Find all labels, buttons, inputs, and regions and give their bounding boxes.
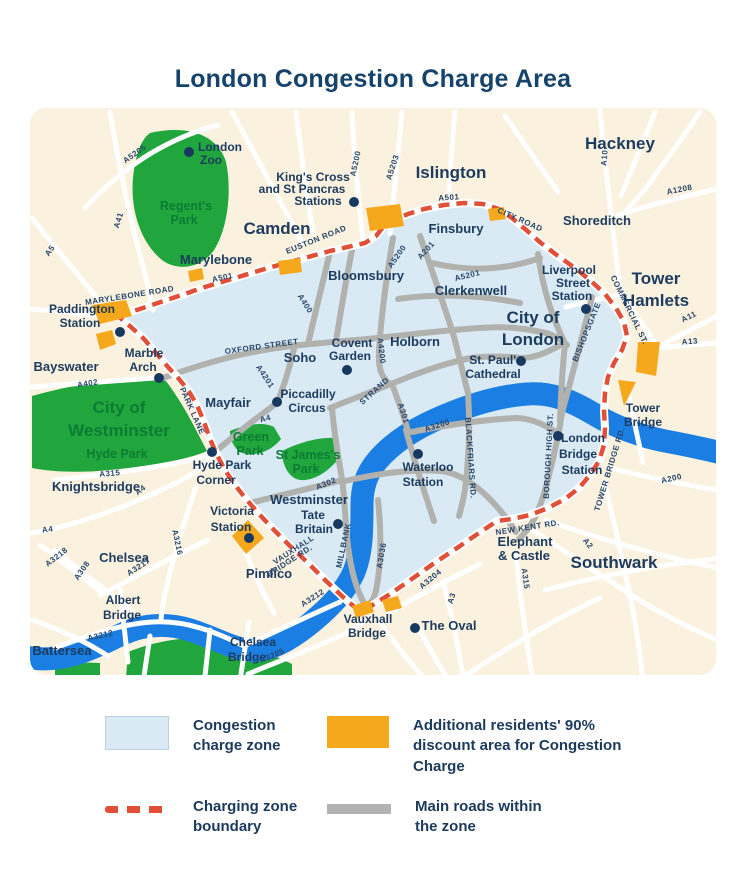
map-label-hyde-park: Hyde Park: [193, 458, 252, 472]
poi-dot-the-oval: [410, 623, 420, 633]
map-label-westminster: Westminster: [270, 492, 348, 507]
map-label-bloomsbury: Bloomsbury: [328, 268, 405, 283]
map-label-bridge: Bridge: [103, 608, 141, 622]
map-label-marble: Marble: [125, 346, 164, 360]
map-label-waterloo: Waterloo: [403, 460, 454, 474]
map-label-city-of: City of: [507, 308, 560, 327]
poi-dot-kings-cross-st-pancras: [349, 197, 359, 207]
map-label-a501: A501: [438, 192, 460, 202]
map-label-tower: Tower: [632, 269, 681, 288]
map-label-southwark: Southwark: [571, 553, 658, 572]
map-label-st-paul-s: St. Paul's: [469, 353, 523, 367]
map-label-piccadilly: Piccadilly: [280, 387, 336, 401]
map-label-knightsbridge: Knightsbridge: [52, 479, 140, 494]
legend-item-boundary: Charging zone boundary: [105, 797, 327, 838]
map-label-arch: Arch: [129, 360, 156, 374]
poi-dot-waterloo-station: [413, 449, 423, 459]
map-label-a4: A4: [41, 524, 53, 534]
legend-label-boundary: Charging zone boundary: [193, 797, 323, 838]
road-swatch: [327, 804, 391, 814]
poi-dot-marble-arch: [154, 373, 164, 383]
discount-swatch: [327, 716, 389, 748]
map-label-tate: Tate: [301, 508, 325, 522]
map-label-battersea: Battersea: [32, 643, 92, 658]
map-canvas: HackneyIslingtonCamdenTowerHamletsCity o…: [30, 108, 716, 675]
map-label-station: Station: [211, 520, 252, 534]
poi-dot-covent-garden: [342, 365, 352, 375]
map-label-liverpool: Liverpool: [542, 263, 596, 277]
map-label-britain: Britain: [295, 522, 333, 536]
page-title: London Congestion Charge Area: [0, 65, 746, 94]
map-label-shoreditch: Shoreditch: [563, 213, 631, 228]
map-label-zoo: Zoo: [200, 153, 222, 167]
map-label-holborn: Holborn: [390, 334, 440, 349]
map-label-park: Park: [170, 213, 197, 227]
map-label-bridge: Bridge: [624, 415, 662, 429]
map-label-victoria: Victoria: [210, 504, 254, 518]
map-label-the-oval: The Oval: [422, 618, 477, 633]
map-label-bridge: Bridge: [559, 447, 597, 461]
legend-item-roads: Main roads within the zone: [327, 797, 717, 838]
map-label-castle: & Castle: [498, 548, 550, 563]
map-label-a315: A315: [99, 468, 121, 479]
map-label-regent-s: Regent's: [160, 199, 212, 213]
map-label-a10: A10: [599, 149, 609, 166]
map-label-garden: Garden: [329, 349, 371, 363]
map-label-mayfair: Mayfair: [205, 395, 251, 410]
map-label-soho: Soho: [284, 350, 317, 365]
poi-dot-london-zoo: [184, 147, 194, 157]
map-label-chelsea: Chelsea: [230, 635, 276, 649]
map-label-vauxhall: Vauxhall: [344, 612, 393, 626]
map-label-london: London: [502, 330, 564, 349]
legend: Congestion charge zone Additional reside…: [105, 716, 717, 837]
map-label-city-of: City of: [93, 398, 146, 417]
map-label-paddington: Paddington: [49, 302, 115, 316]
legend-label-discount: Additional residents' 90% discount area …: [413, 716, 623, 777]
legend-item-zone: Congestion charge zone: [105, 716, 327, 777]
poi-dot-tate-britain: [333, 519, 343, 529]
legend-label-zone: Congestion charge zone: [193, 716, 323, 757]
map-label-stations: Stations: [294, 194, 342, 208]
map-label-street: Street: [556, 276, 590, 290]
map-label-park: Park: [236, 444, 263, 458]
poi-dot-hyde-park-corner: [207, 447, 217, 457]
map-label-clerkenwell: Clerkenwell: [435, 283, 507, 298]
zone-swatch: [105, 716, 169, 750]
discount-area: [278, 258, 302, 275]
map-label-park: Park: [292, 462, 319, 476]
map-label-westminster: Westminster: [68, 421, 170, 440]
legend-label-roads: Main roads within the zone: [415, 797, 565, 838]
map-label-station: Station: [60, 316, 101, 330]
map-label-albert: Albert: [106, 593, 141, 607]
map-label-hackney: Hackney: [585, 134, 655, 153]
map-label-tower: Tower: [626, 401, 661, 415]
map-label-camden: Camden: [243, 219, 310, 238]
map-label-marylebone: Marylebone: [180, 252, 252, 267]
map-label-station: Station: [552, 289, 593, 303]
poi-dot-paddington-station: [115, 327, 125, 337]
map-label-station: Station: [403, 475, 444, 489]
discount-area: [636, 342, 660, 376]
map-label-bayswater: Bayswater: [33, 359, 98, 374]
map-label-circus: Circus: [288, 401, 326, 415]
legend-item-discount: Additional residents' 90% discount area …: [327, 716, 717, 777]
map-label-covent: Covent: [332, 336, 373, 350]
map-label-green: Green: [233, 430, 269, 444]
map-label-islington: Islington: [416, 163, 487, 182]
map-label-a13: A13: [681, 336, 698, 346]
map-label-london: London: [198, 140, 242, 154]
map-label-corner: Corner: [196, 473, 236, 487]
map-label-finsbury: Finsbury: [429, 221, 485, 236]
boundary-swatch: [105, 806, 169, 813]
map-label-bridge: Bridge: [348, 626, 386, 640]
map-panel: HackneyIslingtonCamdenTowerHamletsCity o…: [30, 108, 716, 675]
map-label-cathedral: Cathedral: [465, 367, 520, 381]
map-label-station: Station: [562, 463, 603, 477]
map-label-london: London: [561, 431, 605, 445]
map-label-st-james-s: St James's: [276, 448, 341, 462]
poi-dot-victoria-station: [244, 533, 254, 543]
map-label-elephant: Elephant: [498, 534, 554, 549]
map-label-hyde-park: Hyde Park: [86, 447, 147, 461]
